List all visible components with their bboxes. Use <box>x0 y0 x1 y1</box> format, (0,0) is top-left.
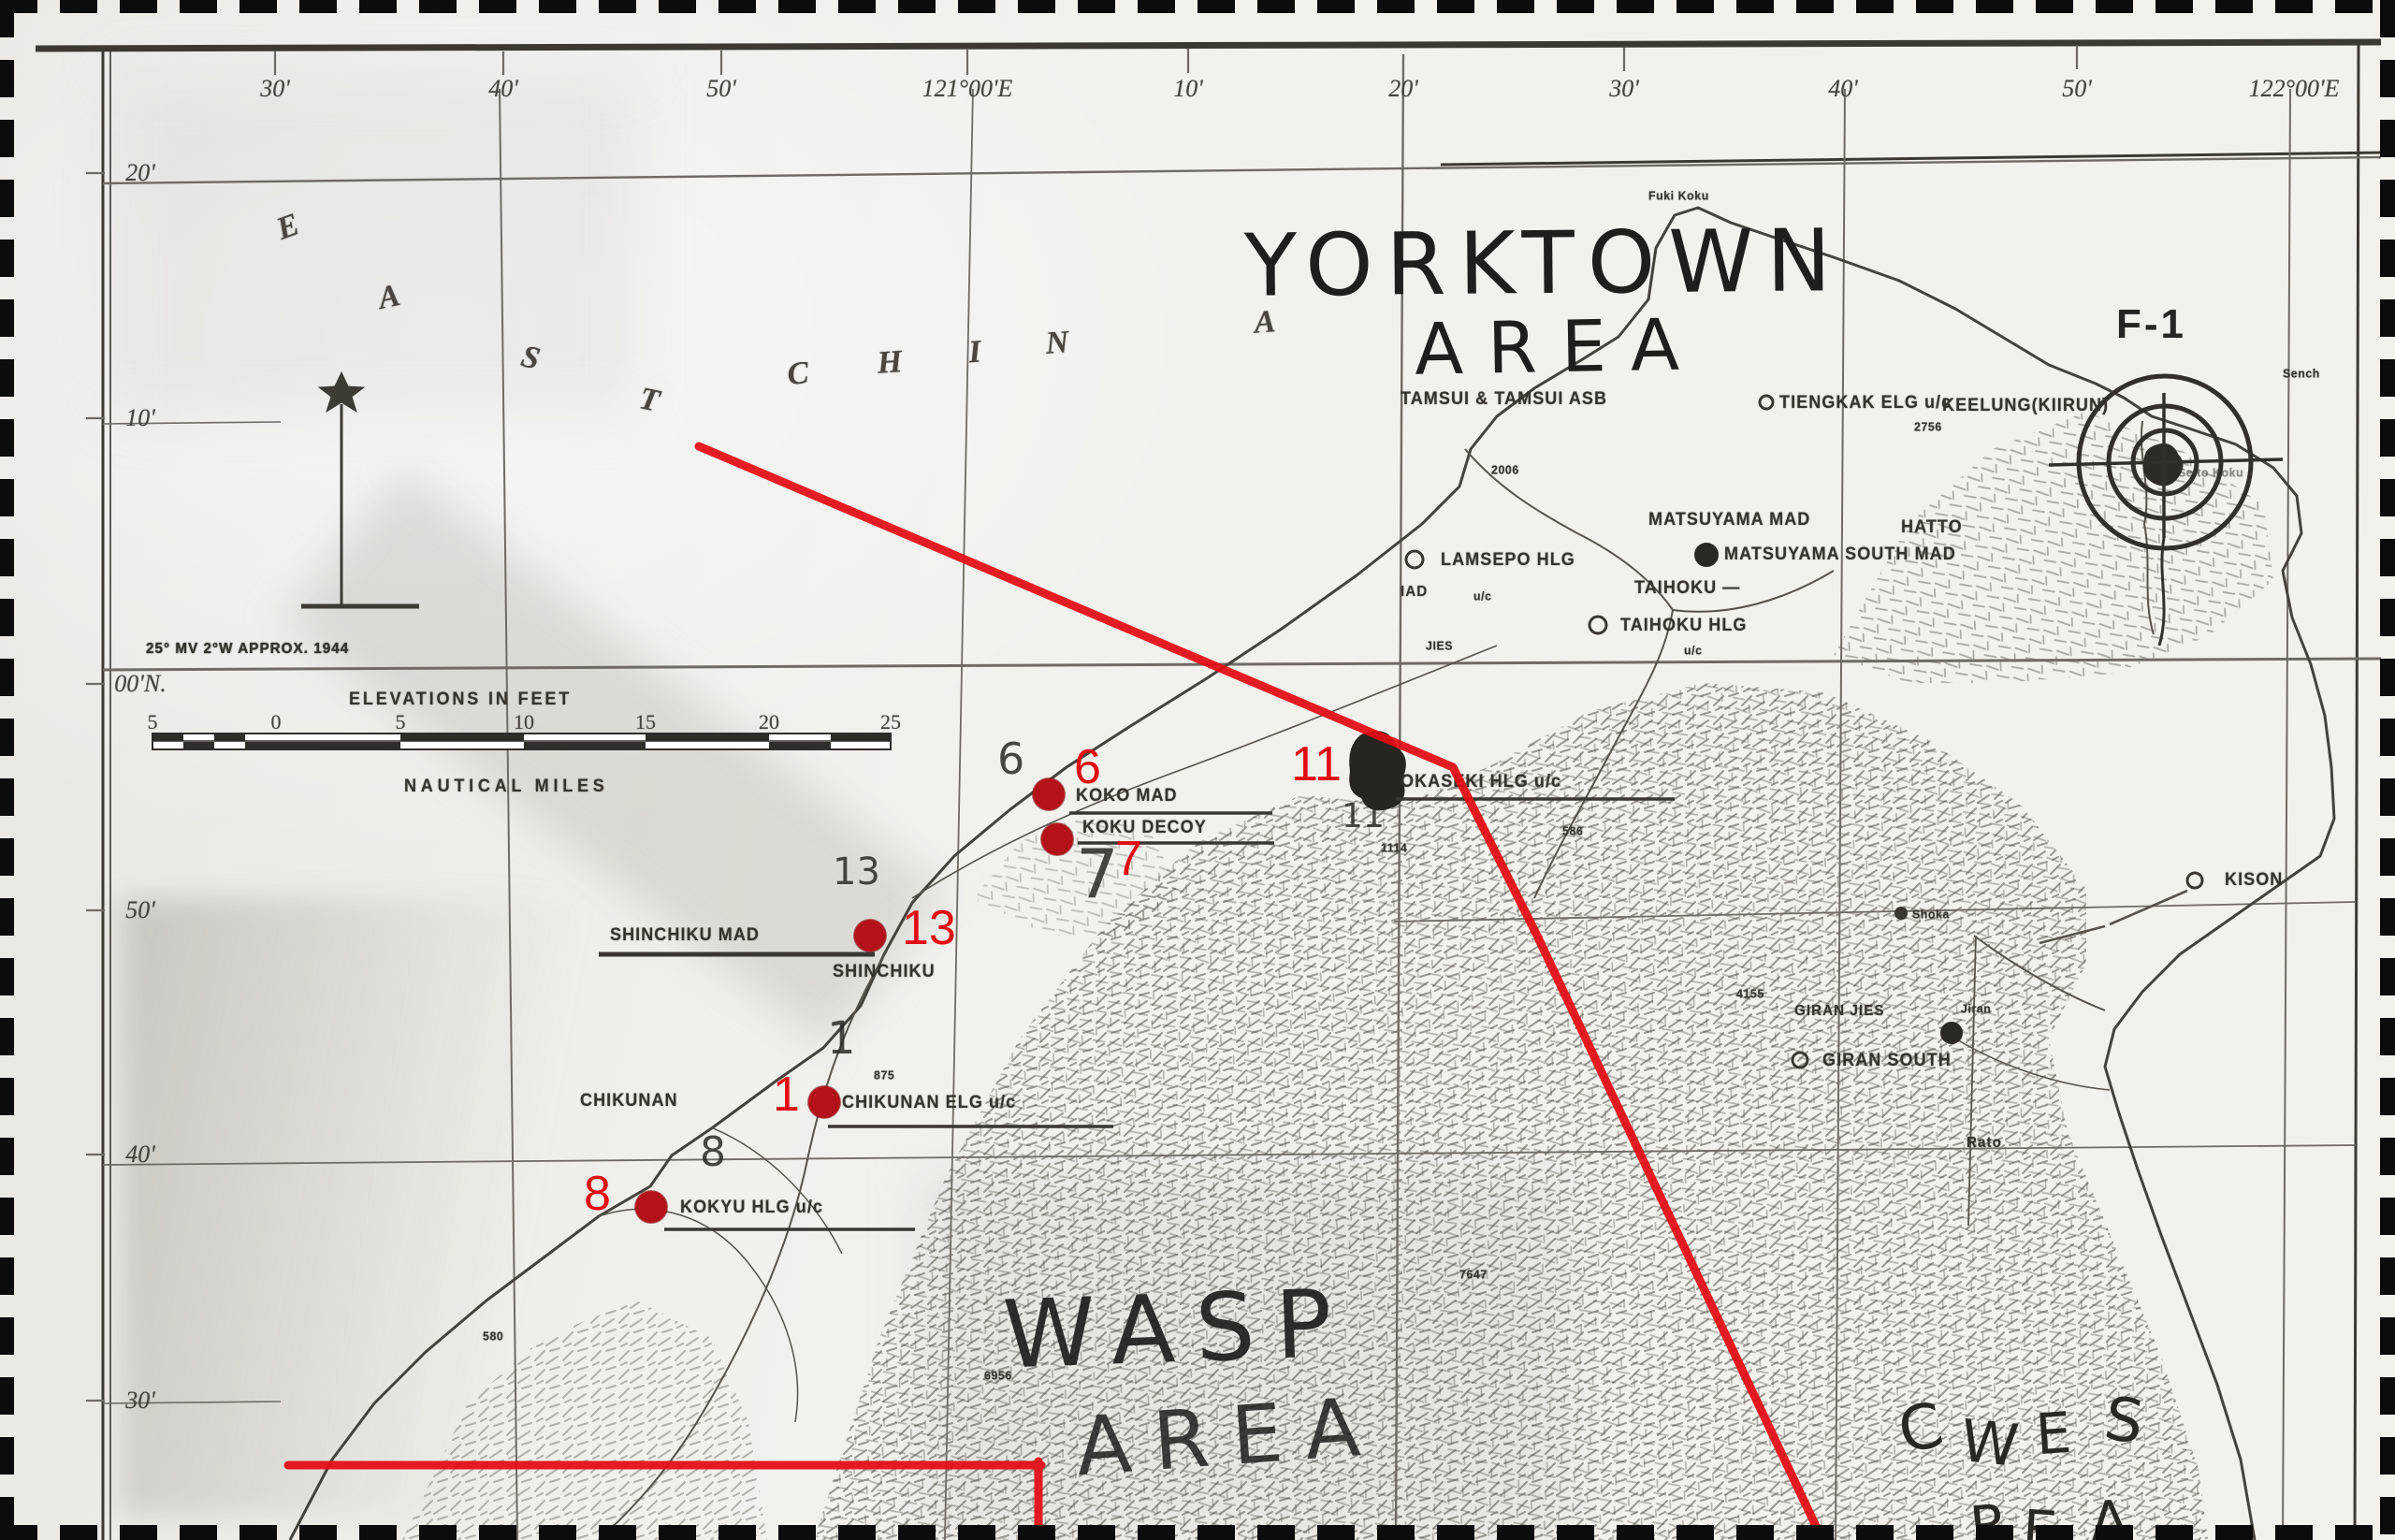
red-annotation-lines <box>0 0 2395 1540</box>
red-boundary-southeast <box>1453 767 1822 1540</box>
red-target-number: 8 <box>584 1170 611 1218</box>
dashed-border-bottom <box>0 1525 2395 1540</box>
red-target-dot <box>808 1086 840 1118</box>
red-target-number: 6 <box>1074 743 1101 792</box>
red-target-dot <box>854 920 886 952</box>
red-target-dot <box>1041 823 1073 855</box>
dashed-border-right <box>2380 0 2395 1540</box>
red-target-dot <box>1033 778 1065 810</box>
annotated-target-map: 30'40'50'121°00'E10'20'30'40'50'122°00'E… <box>0 0 2395 1540</box>
red-target-dot <box>635 1191 667 1223</box>
red-target-number: 1 <box>773 1070 800 1119</box>
red-target-number: 7 <box>1115 835 1142 883</box>
red-target-number: 13 <box>902 904 956 952</box>
dashed-border-top <box>0 0 2395 13</box>
dashed-border-left <box>0 0 14 1540</box>
red-target-number: 11 <box>1291 740 1342 789</box>
red-boundary-northwest <box>699 446 1453 767</box>
